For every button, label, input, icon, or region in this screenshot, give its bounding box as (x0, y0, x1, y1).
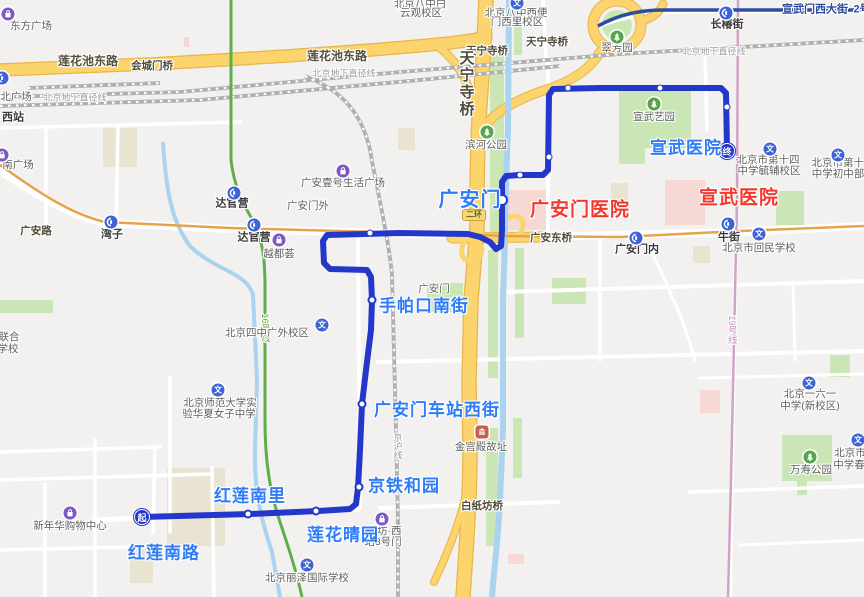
road-label: 宣武门西大街 (782, 5, 848, 16)
hospital-label-xuanwu[interactable]: 宣武医院 (699, 189, 779, 208)
landmark-icon[interactable] (476, 426, 489, 439)
poi-label[interactable]: 北京市第十四 (737, 155, 800, 166)
metro-line2-label-clipped: 2号 (853, 5, 864, 16)
school-icon[interactable]: 文 (753, 228, 766, 241)
poi-label[interactable]: 南广场 (2, 160, 34, 171)
bus-stop-label[interactable]: 手帕口南街 (379, 298, 469, 315)
poi-label[interactable]: 中学毓辅校区 (738, 166, 801, 177)
railway-label: 北京地下直径线 (43, 94, 106, 103)
poi-label[interactable]: 验华夏女子中学 (182, 409, 256, 420)
poi-label[interactable]: 翠芳园 (601, 43, 633, 54)
area-label: 广安门外 (287, 201, 329, 212)
poi-label[interactable]: 北京四中广外校区 (225, 328, 309, 339)
park-icon[interactable] (648, 98, 661, 111)
poi-label[interactable]: 北京市回民学校 (722, 243, 796, 254)
railway-label: 北京地下直径线 (312, 70, 375, 79)
shop-icon[interactable] (337, 165, 350, 178)
route-start-badge[interactable]: 起 (134, 509, 150, 525)
shop-icon[interactable] (2, 8, 15, 21)
railway-label: 北京地下直径线 (682, 48, 745, 57)
poi-label[interactable]: 越都荟 (263, 249, 295, 260)
poi-label-clipped: 北京市 (834, 448, 864, 459)
park-icon[interactable] (481, 126, 494, 139)
poi-label[interactable]: 中学(新校区) (780, 401, 840, 412)
school-icon[interactable]: 文 (316, 319, 329, 332)
poi-label[interactable]: 云观校区 (400, 8, 442, 19)
poi-label[interactable]: 金宫殿故址 (455, 442, 508, 453)
poi-label-clipped: 中学春 (833, 460, 864, 471)
metro-line19-label: 19号线 (726, 315, 736, 345)
poi-label[interactable]: 北京师范大学实 (183, 398, 257, 409)
metro-icon[interactable] (0, 72, 9, 85)
metro-station-label: 达官营 (238, 233, 271, 244)
route-waypoint-dot (657, 85, 664, 92)
bus-stop-label[interactable]: 京铁和园 (368, 478, 440, 495)
poi-label[interactable]: 宣武艺园 (633, 112, 675, 123)
road-label: 莲花池东路 (307, 50, 367, 62)
railway-label: 京沪线 (393, 433, 402, 460)
poi-label[interactable]: 北京丽泽国际学校 (265, 573, 349, 584)
poi-label[interactable]: 西站 (2, 113, 24, 124)
bus-stop-dot[interactable] (358, 400, 367, 409)
shop-icon[interactable] (376, 513, 389, 526)
bus-stop-dot[interactable] (355, 483, 364, 492)
metro-icon[interactable] (720, 7, 733, 20)
poi-label[interactable]: 新年华购物中心 (33, 521, 107, 532)
map-canvas[interactable]: 二环 广安门医院宣武医院莲花池东路莲花池东路会城门桥天宁寺桥天宁寺桥天宁寺桥广安… (0, 0, 864, 597)
bus-stop-label[interactable]: 莲花晴园 (307, 527, 379, 544)
route-waypoint-dot (517, 172, 524, 179)
school-icon[interactable]: 文 (212, 384, 225, 397)
bus-stop-label[interactable]: 广安门 (439, 190, 502, 210)
bridge-label: 会城门桥 (131, 61, 173, 72)
route-waypoint-dot (367, 230, 374, 237)
metro-icon[interactable] (722, 218, 735, 231)
poi-label[interactable]: 北广场 (0, 92, 32, 103)
school-icon[interactable]: 文 (852, 434, 864, 447)
bus-stop-dot[interactable] (368, 296, 377, 305)
bus-stop-dot[interactable] (312, 507, 321, 516)
poi-label[interactable]: 北京一六一 (784, 389, 837, 400)
poi-label[interactable]: 滨河公园 (465, 140, 507, 151)
school-icon[interactable]: 文 (301, 559, 314, 572)
route-waypoint-dot (546, 154, 553, 161)
area-label: 广安门 (418, 284, 450, 295)
metro-station-label: 长椿街 (711, 20, 744, 31)
park-icon[interactable] (804, 451, 817, 464)
metro-station-label: 达官营 (216, 199, 249, 210)
bus-stop-label[interactable]: 红莲南路 (128, 545, 200, 562)
bus-stop-label[interactable]: 红莲南里 (214, 488, 286, 505)
route-waypoint-dot (565, 85, 572, 92)
road-label: 莲花池东路 (58, 55, 118, 67)
poi-label[interactable]: 万寿公园 (790, 465, 832, 476)
road-label: 广安路 (20, 226, 52, 237)
bridge-label: 白纸坊桥 (461, 501, 503, 512)
poi-label[interactable]: 门西里校区 (491, 17, 544, 28)
poi-label[interactable]: 中学初中部 (812, 169, 864, 180)
bridge-label: 天宁寺桥 (526, 37, 568, 48)
metro-icon[interactable] (248, 219, 261, 232)
shop-icon[interactable] (273, 234, 286, 247)
metro-icon[interactable] (630, 232, 643, 245)
poi-label-clipped: 联合 (0, 332, 20, 343)
poi-label[interactable]: 广安壹号生活广场 (301, 178, 385, 189)
route-waypoint-dot (724, 104, 731, 111)
overlay-layer: 二环 广安门医院宣武医院莲花池东路莲花池东路会城门桥天宁寺桥天宁寺桥天宁寺桥广安… (0, 0, 864, 597)
bridge-label-vertical: 天宁寺桥 (459, 50, 474, 118)
poi-label[interactable]: 东方广场 (10, 21, 52, 32)
bus-stop-label[interactable]: 广安门车站西街 (374, 402, 500, 419)
park-icon[interactable] (611, 31, 624, 44)
school-icon[interactable]: 文 (803, 377, 816, 390)
bus-stop-label[interactable]: 宣武医院 (650, 140, 722, 157)
metro-station-label: 湾子 (101, 230, 123, 241)
bus-stop-dot[interactable] (244, 510, 253, 519)
bridge-label: 广安东桥 (530, 233, 572, 244)
metro-icon[interactable] (228, 187, 241, 200)
metro-icon[interactable] (105, 216, 118, 229)
poi-label-clipped: 学校 (0, 344, 19, 355)
hospital-label-guanganmen[interactable]: 广安门医院 (530, 201, 630, 220)
shop-icon[interactable] (64, 507, 77, 520)
metro-station-label: 广安门内 (615, 245, 659, 256)
school-icon[interactable]: 文 (764, 143, 777, 156)
school-icon[interactable]: 文 (832, 149, 845, 162)
